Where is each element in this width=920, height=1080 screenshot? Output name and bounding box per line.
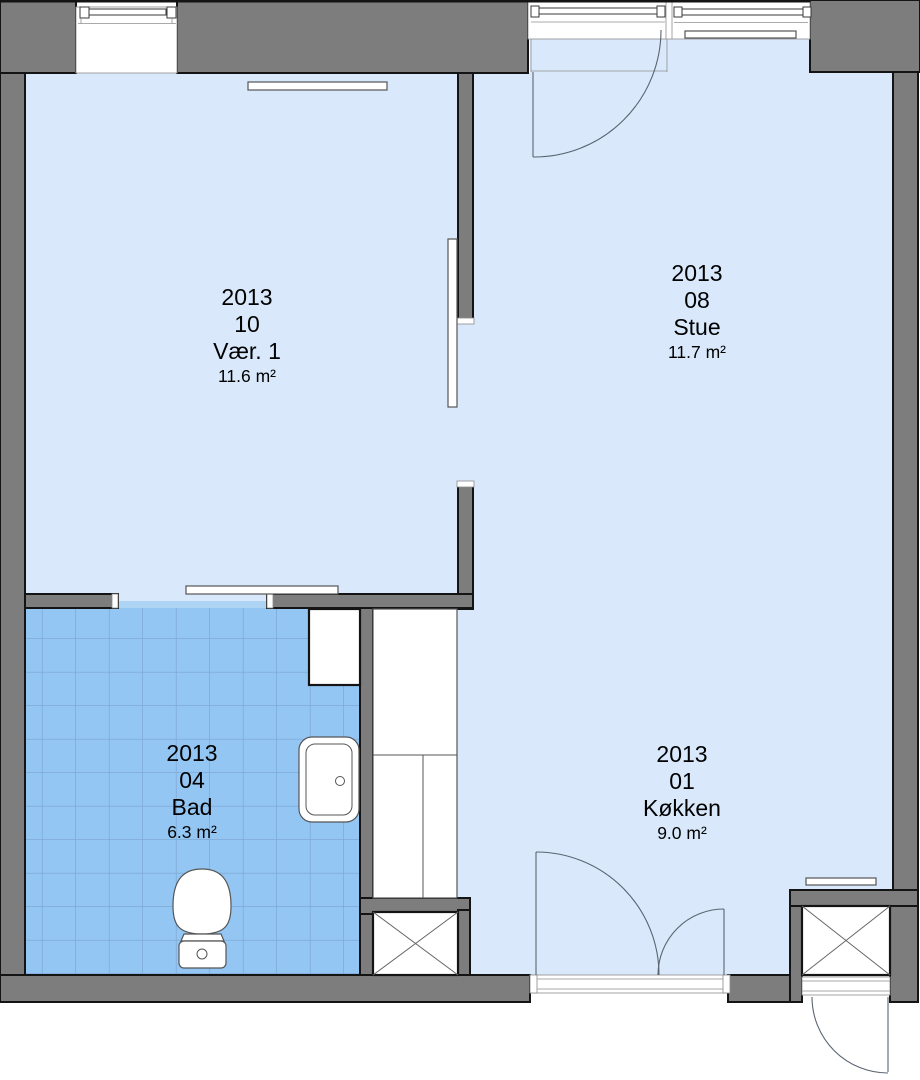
radiator-icon: [685, 31, 796, 38]
wall-bad-north-left: [25, 594, 118, 608]
kitchen-counter-icon: [373, 609, 457, 898]
room-number: 08: [537, 287, 857, 314]
bad-doorway-threshold: [118, 601, 267, 608]
toilet-bowl: [173, 869, 231, 934]
room-name: Vær. 1: [87, 338, 407, 365]
room-name: Stue: [537, 314, 857, 341]
shaft-x-icon: [802, 906, 890, 975]
wall-divider-upper: [458, 73, 473, 322]
toilet-tank: [179, 941, 226, 968]
wall-divider-lower: [458, 482, 473, 609]
wall-left: [0, 0, 25, 1002]
radiator-icon: [806, 878, 876, 885]
exterior-door-threshold: [802, 977, 890, 995]
wall-bottom-left: [0, 975, 530, 1002]
room-area: 11.7 m²: [537, 341, 857, 364]
window-mullion: [803, 7, 811, 17]
room-number: 10: [87, 311, 407, 338]
balcony-door-mullion: [657, 6, 665, 17]
room-area: 9.0 m²: [522, 822, 842, 845]
radiator-icon: [248, 82, 387, 90]
door-swing-icon: [812, 997, 888, 1073]
wall-bad-north-left-cap: [112, 594, 118, 608]
wall-shaft-left-side: [458, 910, 470, 975]
room-label-koekken: 2013 01 Køkken 9.0 m²: [522, 741, 842, 845]
window-icon: [88, 9, 166, 15]
window-vaer1: [76, 7, 177, 73]
bad-doorway-floor: [118, 594, 267, 601]
room-label-bad: 2013 04 Bad 6.3 m²: [32, 740, 352, 844]
room-number: 04: [32, 767, 352, 794]
balcony-door-mullion: [531, 6, 539, 17]
wall-shaft-right-rightcol: [890, 906, 918, 1002]
room-label-vaer1: 2013 10 Vær. 1 11.6 m²: [87, 284, 407, 388]
floor-plan: 2013 10 Vær. 1 11.6 m² 2013 08 Stue 11.7…: [0, 0, 920, 1080]
floor-stue-recess: [530, 39, 810, 74]
wall-divider-upper-cap: [457, 318, 474, 324]
wall-top-left-block: [0, 0, 76, 73]
sliding-door-icon: [448, 239, 457, 407]
window-mullion: [674, 7, 682, 17]
wall-top-mid: [177, 0, 528, 73]
room-label-stue: 2013 08 Stue 11.7 m²: [537, 260, 857, 364]
french-door-jamb: [530, 975, 537, 993]
balcony-door-glazing: [539, 8, 657, 14]
washer-icon: [309, 609, 360, 685]
toilet-icon: [173, 869, 231, 968]
room-area: 11.6 m²: [87, 365, 407, 388]
french-door-jamb: [723, 975, 730, 993]
wall-bad-north-right-cap: [267, 594, 273, 608]
wall-right: [893, 72, 918, 1002]
window-mullion: [80, 7, 89, 18]
wall-bad-koekken: [360, 608, 373, 975]
room-year: 2013: [537, 260, 857, 287]
room-year: 2013: [87, 284, 407, 311]
wall-divider-lower-cap: [457, 481, 474, 487]
room-area: 6.3 m²: [32, 821, 352, 844]
window-niche: [76, 7, 177, 73]
radiator-icon: [186, 586, 338, 594]
wall-bottom-mid: [728, 975, 790, 1002]
room-number: 01: [522, 768, 842, 795]
room-name: Bad: [32, 794, 352, 821]
wall-top-right-block: [810, 0, 920, 72]
room-year: 2013: [32, 740, 352, 767]
wall-shaft-right-leftcol: [790, 906, 802, 1002]
french-door-sill: [530, 975, 730, 993]
window-mullion: [167, 7, 176, 18]
room-year: 2013: [522, 741, 842, 768]
shaft-x-icon: [373, 912, 458, 975]
window-icon: [682, 9, 803, 15]
room-name: Køkken: [522, 795, 842, 822]
wall-bad-north-right: [267, 594, 473, 608]
kitchen-counter-outline: [373, 609, 457, 898]
floor-plan-canvas: [0, 0, 920, 1080]
exterior-door-bottom-right: [802, 977, 890, 1073]
toilet-seat-hinge: [181, 934, 224, 941]
